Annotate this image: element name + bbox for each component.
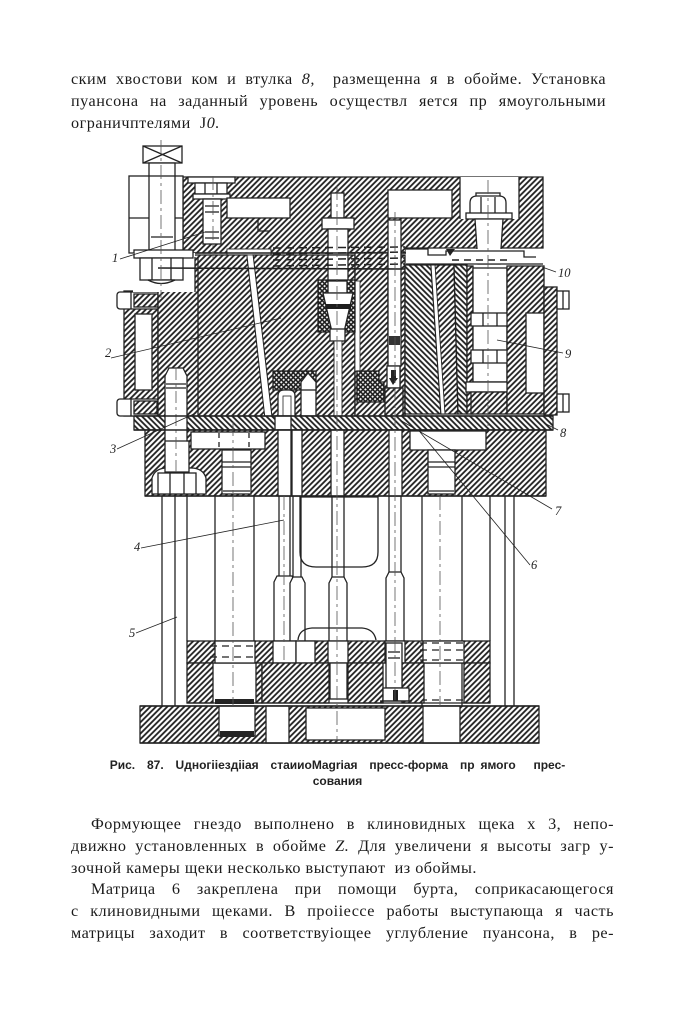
svg-text:1: 1 (112, 251, 118, 265)
svg-text:8: 8 (560, 426, 567, 440)
svg-text:9: 9 (565, 347, 572, 361)
svg-text:7: 7 (555, 504, 562, 518)
svg-text:3: 3 (109, 442, 116, 456)
svg-text:6: 6 (531, 558, 538, 572)
svg-text:2: 2 (105, 346, 111, 360)
svg-text:4: 4 (134, 540, 140, 554)
svg-text:5: 5 (129, 626, 135, 640)
svg-text:10: 10 (558, 266, 571, 280)
